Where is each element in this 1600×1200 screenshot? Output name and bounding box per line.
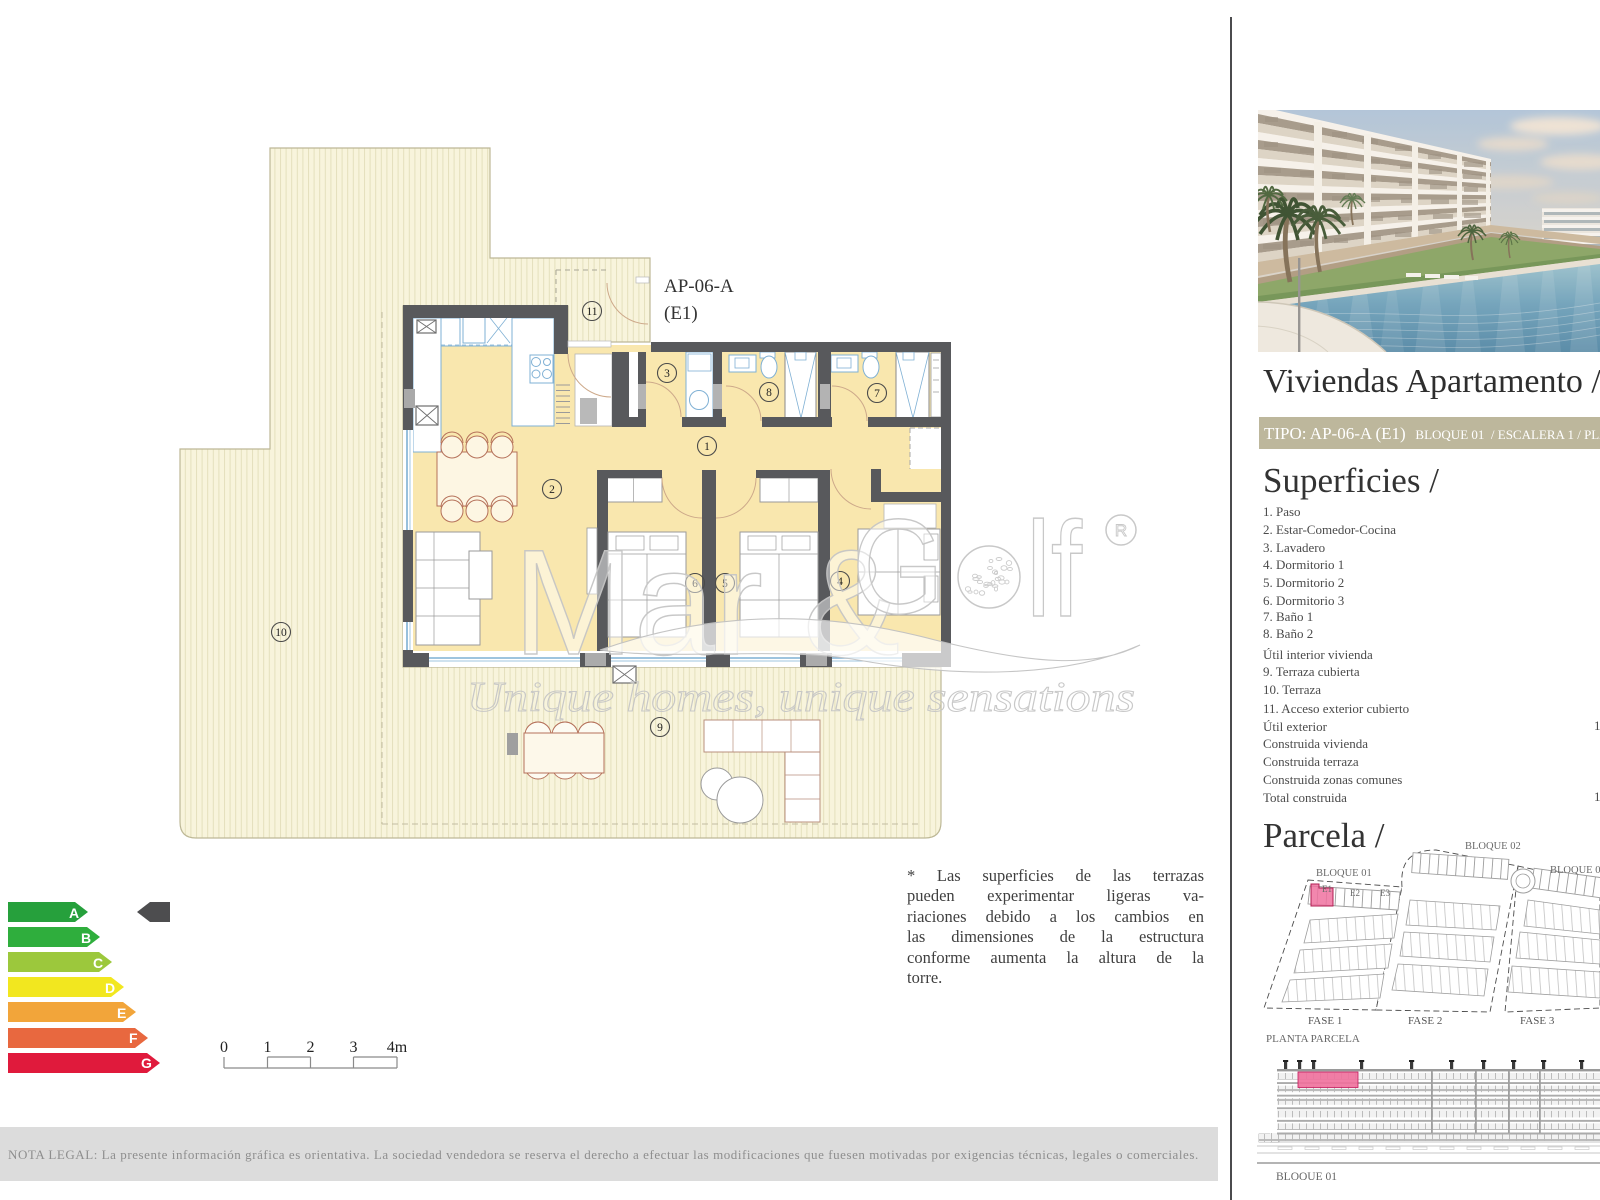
svg-text:E: E (117, 1005, 126, 1021)
svg-text:(E1): (E1) (664, 303, 698, 324)
svg-text:9: 9 (657, 722, 663, 734)
svg-text:7: 7 (874, 388, 880, 400)
svg-text:0: 0 (220, 1039, 228, 1056)
svg-text:R: R (1115, 521, 1127, 540)
svg-text:A: A (69, 905, 79, 921)
svg-text:lf: lf (1026, 494, 1082, 645)
svg-text:E1: E1 (1322, 884, 1332, 894)
svg-text:C: C (93, 955, 103, 971)
svg-text:4m: 4m (387, 1039, 408, 1056)
svg-text:E3: E3 (1380, 888, 1390, 898)
svg-text:3: 3 (664, 368, 670, 380)
svg-text:BLOQUE 01: BLOQUE 01 (1316, 868, 1372, 879)
svg-text:FASE 2: FASE 2 (1408, 1015, 1442, 1027)
svg-text:BLOQUE 01: BLOQUE 01 (1276, 1171, 1337, 1180)
svg-text:FASE 1: FASE 1 (1308, 1015, 1342, 1027)
svg-text:Mar &: Mar & (513, 518, 900, 686)
svg-text:AP-06-A: AP-06-A (664, 276, 734, 297)
svg-text:2: 2 (549, 484, 555, 496)
svg-text:3: 3 (350, 1039, 358, 1056)
svg-text:8: 8 (766, 387, 772, 399)
svg-text:1: 1 (264, 1039, 272, 1056)
svg-text:B: B (81, 930, 91, 946)
svg-text:1: 1 (704, 441, 710, 453)
svg-text:BLOQUE 03: BLOQUE 03 (1550, 865, 1600, 876)
svg-text:E2: E2 (1350, 888, 1360, 898)
svg-text:FASE 3: FASE 3 (1520, 1015, 1555, 1027)
svg-text:Unique homes, unique sensation: Unique homes, unique sensations (467, 675, 1135, 721)
svg-text:D: D (105, 980, 115, 996)
svg-text:2: 2 (307, 1039, 315, 1056)
svg-text:11: 11 (586, 306, 597, 318)
svg-text:10: 10 (275, 627, 287, 639)
svg-text:G: G (141, 1055, 152, 1071)
svg-text:PLANTA PARCELA: PLANTA PARCELA (1266, 1033, 1360, 1045)
svg-text:F: F (129, 1030, 138, 1046)
svg-text:G: G (852, 491, 944, 642)
svg-text:BLOQUE 02: BLOQUE 02 (1465, 841, 1521, 852)
